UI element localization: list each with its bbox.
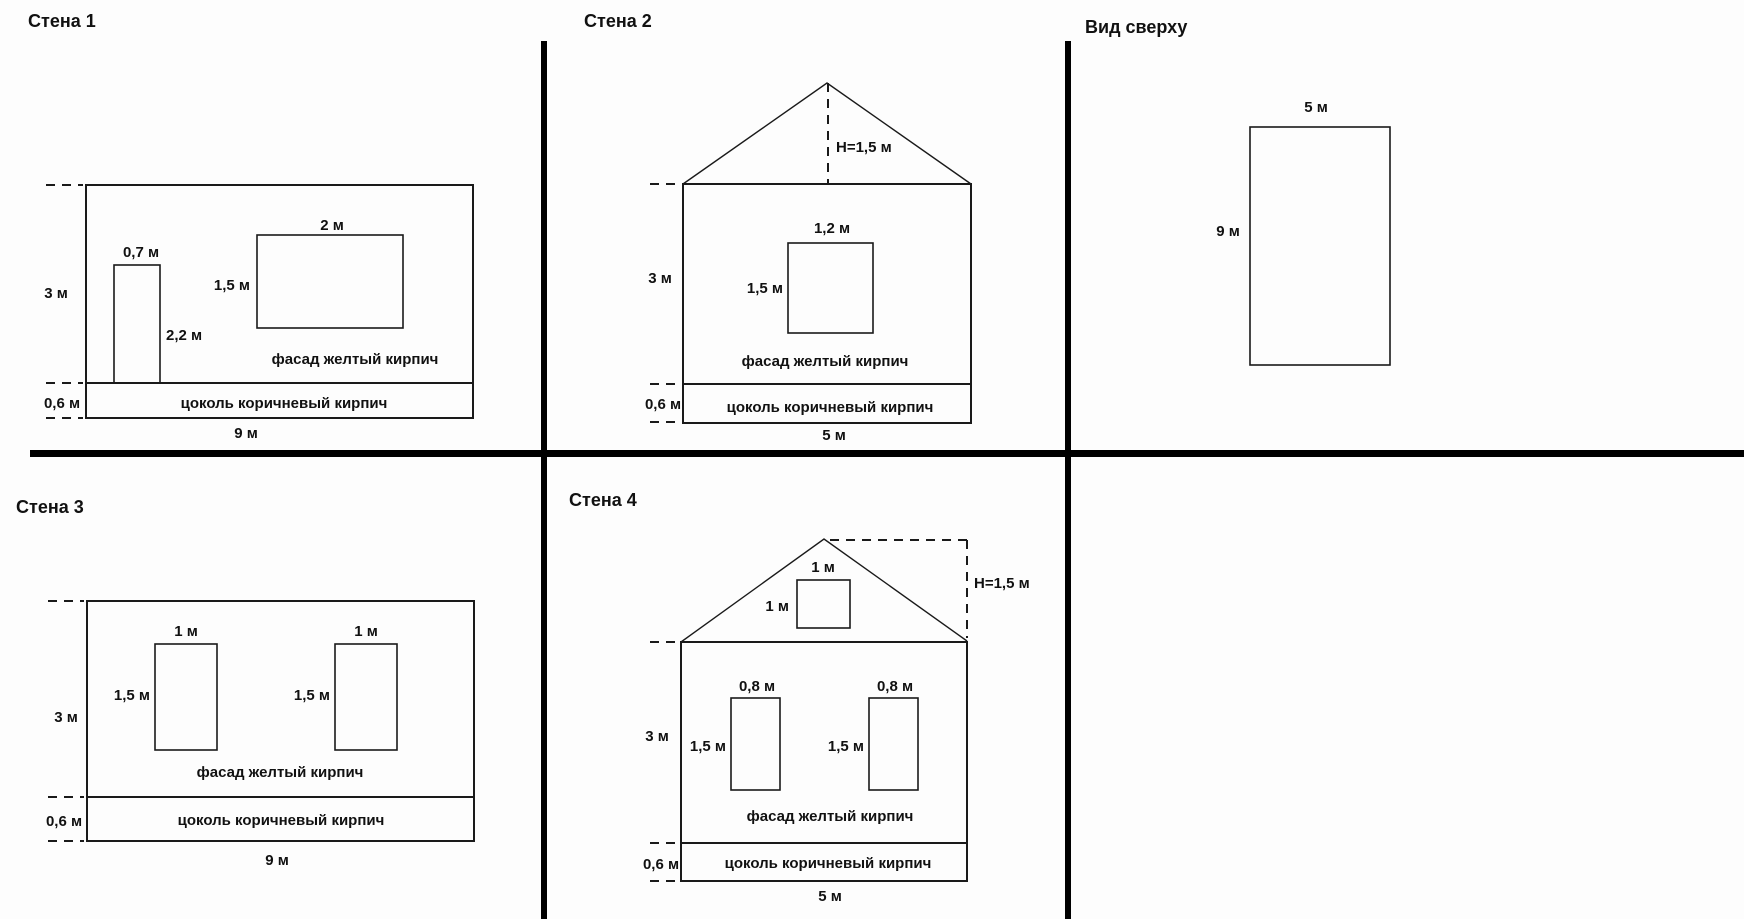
wall-4-label-9: 0,6 м bbox=[643, 856, 679, 873]
wall-2-label-3: 3 м bbox=[648, 270, 672, 287]
wall-4-label-10: цоколь коричневый кирпич bbox=[725, 855, 932, 872]
wall-3-label-3: 1,5 м bbox=[294, 687, 330, 704]
wall-4-label-6: 1,5 м bbox=[828, 738, 864, 755]
top-view-label-0: 5 м bbox=[1304, 99, 1328, 116]
wall-4-label-1: 1 м bbox=[811, 559, 835, 576]
wall-3-label-2: 1,5 м bbox=[114, 687, 150, 704]
panel-top-view: 5 м9 м bbox=[1216, 99, 1390, 365]
panel-title-top-view: Вид сверху bbox=[1085, 17, 1187, 38]
wall-2-window bbox=[788, 243, 873, 333]
wall-4-label-3: 0,8 м bbox=[739, 678, 775, 695]
wall-1-label-1: 2 м bbox=[320, 217, 344, 234]
wall-4-label-4: 0,8 м bbox=[877, 678, 913, 695]
wall-2-label-5: 0,6 м bbox=[645, 396, 681, 413]
wall-1-label-8: 9 м bbox=[234, 425, 258, 442]
wall-1-label-2: 1,5 м bbox=[214, 277, 250, 294]
panel-wall-4: Н=1,5 м1 м1 м0,8 м0,8 м1,5 м1,5 м3 мфаса… bbox=[643, 539, 1030, 905]
quadrant-divider-horizontal bbox=[30, 450, 1744, 457]
wall-2-label-7: 5 м bbox=[822, 427, 846, 444]
wall-4-window-left bbox=[731, 698, 780, 790]
wall-1-window bbox=[257, 235, 403, 328]
panel-title-wall-2: Стена 2 bbox=[584, 11, 652, 32]
wall-4-label-11: 5 м bbox=[818, 888, 842, 905]
quadrant-divider-vertical-right bbox=[1065, 41, 1071, 919]
wall-1-door bbox=[114, 265, 160, 383]
wall-4-label-5: 1,5 м bbox=[690, 738, 726, 755]
wall-3-label-8: 9 м bbox=[265, 852, 289, 869]
wall-3-label-5: фасад желтый кирпич bbox=[197, 764, 364, 781]
wall-1-label-3: 2,2 м bbox=[166, 327, 202, 344]
wall-1-label-0: 0,7 м bbox=[123, 244, 159, 261]
wall-3-window-right bbox=[335, 644, 397, 750]
wall-3-label-0: 1 м bbox=[174, 623, 198, 640]
wall-3-label-1: 1 м bbox=[354, 623, 378, 640]
wall-1-label-6: фасад желтый кирпич bbox=[272, 351, 439, 368]
wall-4-window-right bbox=[869, 698, 918, 790]
wall-2-label-4: фасад желтый кирпич bbox=[742, 353, 909, 370]
wall-2-label-1: 1,2 м bbox=[814, 220, 850, 237]
wall-3-window-left bbox=[155, 644, 217, 750]
wall-3-label-7: цоколь коричневый кирпич bbox=[178, 812, 385, 829]
wall-1-label-4: 3 м bbox=[44, 285, 68, 302]
wall-2-label-6: цоколь коричневый кирпич bbox=[727, 399, 934, 416]
quadrant-divider-vertical-left bbox=[541, 41, 547, 919]
wall-4-label-7: 3 м bbox=[645, 728, 669, 745]
panel-wall-2: Н=1,5 м1,2 м1,5 м3 мфасад желтый кирпич0… bbox=[645, 83, 971, 444]
panel-wall-3: 1 м1 м1,5 м1,5 м3 мфасад желтый кирпич0,… bbox=[46, 601, 474, 869]
panel-title-wall-4: Стена 4 bbox=[569, 490, 637, 511]
wall-4-attic-window bbox=[797, 580, 850, 628]
wall-4-label-2: 1 м bbox=[765, 598, 789, 615]
wall-3-label-6: 0,6 м bbox=[46, 813, 82, 830]
wall-4-label-8: фасад желтый кирпич bbox=[747, 808, 914, 825]
wall-3-label-4: 3 м bbox=[54, 709, 78, 726]
panel-title-wall-3: Стена 3 bbox=[16, 497, 84, 518]
wall-2-label-0: Н=1,5 м bbox=[836, 139, 892, 156]
top-view-label-1: 9 м bbox=[1216, 223, 1240, 240]
wall-4-roof bbox=[681, 539, 967, 642]
wall-1-label-5: 0,6 м bbox=[44, 395, 80, 412]
panel-wall-1: 0,7 м2 м1,5 м2,2 м3 м0,6 мфасад желтый к… bbox=[44, 185, 473, 442]
blueprint-canvas: 0,7 м2 м1,5 м2,2 м3 м0,6 мфасад желтый к… bbox=[0, 0, 1744, 919]
wall-1-label-7: цоколь коричневый кирпич bbox=[181, 395, 388, 412]
panel-title-wall-1: Стена 1 bbox=[28, 11, 96, 32]
wall-2-label-2: 1,5 м bbox=[747, 280, 783, 297]
blueprint-drawing: 0,7 м2 м1,5 м2,2 м3 м0,6 мфасад желтый к… bbox=[0, 0, 1744, 919]
wall-4-label-0: Н=1,5 м bbox=[974, 575, 1030, 592]
top-view-plan-outline bbox=[1250, 127, 1390, 365]
